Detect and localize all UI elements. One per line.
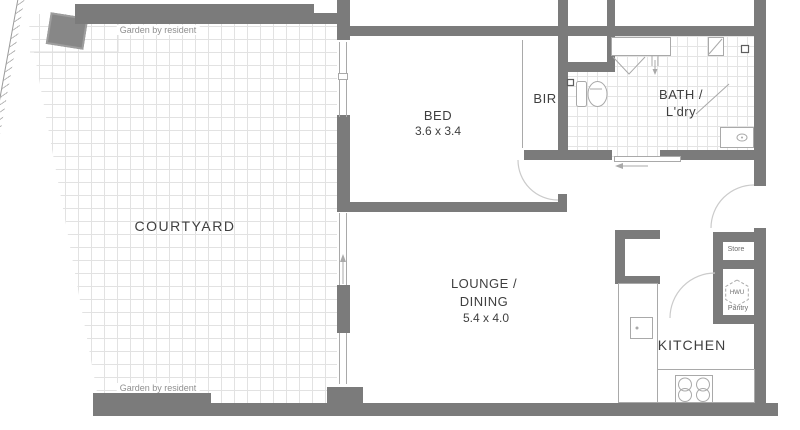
wall-south-thick [93,393,211,416]
pantry-label: Pantry [728,305,748,312]
wall-courtyard-north [75,4,314,24]
garden-top-label: Garden by resident [117,25,200,35]
site-boundary-line [0,0,25,430]
bath-label-line2: L'dry [666,104,696,119]
wall-courtyard-east-b [337,285,350,333]
floor-plan: Garden by resident Garden by resident CO… [0,0,800,430]
pantry-door-arc [670,273,715,318]
wall-store-bottom [713,260,756,269]
wall-pantry-left [713,269,723,317]
wall-east-upper [754,0,766,186]
kitchen-bench-bottom [658,370,755,403]
kitchen-bench-left [619,284,658,403]
wall-bed-door-jamb [558,194,567,204]
kitchen-sink-icon [631,318,653,339]
lounge-label-line1: LOUNGE / [451,276,517,291]
wall-pantry-bottom [713,315,756,324]
wall-courtyard-north-step [312,13,340,24]
wall-bath-south [660,150,754,160]
bed-dims: 3.6 x 3.4 [415,124,461,138]
wall-courtyard-east-a [337,115,350,212]
courtyard-south-window [340,333,347,384]
wall-bed-lounge-divider [345,202,567,212]
garden-bottom-label: Garden by resident [117,383,200,393]
wall-closet-south [560,62,615,72]
wall-fridge-bottom [615,276,660,284]
bed-window [339,42,348,117]
courtyard-label: COURTYARD [135,218,236,234]
wall-south-main [210,403,778,416]
bed-door-arc [518,160,558,200]
entry-door-arc [711,185,754,228]
courtyard-slider [340,213,347,285]
lounge-dims: 5.4 x 4.0 [463,311,509,325]
wall-north-main [338,26,764,36]
kitchen-label: KITCHEN [658,337,726,353]
hwu-label: HWU [730,290,744,296]
wall-entry-stub [607,0,615,68]
bed-label: BED [424,108,452,123]
pillar-bed-nw [337,0,350,40]
bir-label: BIR [533,91,556,106]
entry-closet-cell [568,36,607,64]
lounge-label-line2: DINING [460,294,509,309]
cooktop-icon [676,376,713,403]
wall-bir-bath-divider [558,0,568,160]
store-label: Store [728,246,745,253]
bath-label-line1: BATH / [659,87,703,102]
wall-bir-south [524,150,612,160]
